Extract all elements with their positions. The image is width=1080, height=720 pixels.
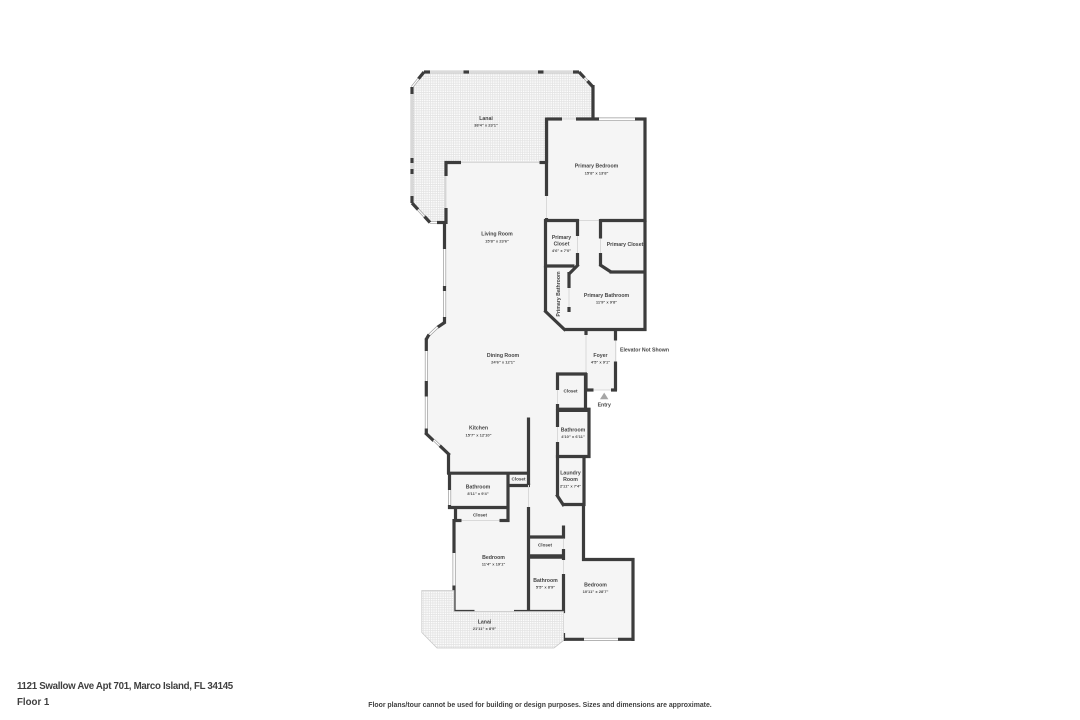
svg-text:4'5" x 9'1": 4'5" x 9'1"	[591, 360, 610, 365]
svg-text:Living Room: Living Room	[481, 232, 513, 238]
svg-text:Entry: Entry	[598, 403, 611, 409]
svg-text:11'4" x 19'1": 11'4" x 19'1"	[482, 562, 506, 567]
svg-text:Primary Bathroom: Primary Bathroom	[584, 293, 630, 299]
svg-text:Bathroom: Bathroom	[466, 485, 491, 491]
svg-text:Laundry: Laundry	[560, 471, 581, 477]
svg-text:Bathroom: Bathroom	[561, 428, 586, 434]
svg-text:Closet: Closet	[511, 477, 526, 482]
svg-text:Primary Bathroom: Primary Bathroom	[556, 271, 562, 317]
svg-text:Foyer: Foyer	[593, 353, 607, 359]
svg-text:8'11" x 9'4": 8'11" x 9'4"	[467, 491, 488, 496]
svg-text:Elevator Not Shown: Elevator Not Shown	[620, 348, 669, 354]
svg-text:1121 Swallow Ave Apt 701, Marc: 1121 Swallow Ave Apt 701, Marco Island, …	[17, 681, 234, 692]
svg-text:21'11" x 8'9": 21'11" x 8'9"	[473, 626, 497, 631]
svg-text:Room: Room	[563, 477, 578, 483]
svg-text:4'6" x 7'0": 4'6" x 7'0"	[552, 248, 571, 253]
svg-text:Primary Bedroom: Primary Bedroom	[575, 164, 619, 170]
svg-text:Primary Closet: Primary Closet	[607, 242, 644, 248]
svg-text:4'10" x 6'11": 4'10" x 6'11"	[561, 434, 585, 439]
svg-text:10'11" x 28'7": 10'11" x 28'7"	[583, 589, 609, 594]
svg-text:Lanai: Lanai	[478, 620, 492, 626]
svg-text:11'9" x 9'8": 11'9" x 9'8"	[596, 300, 617, 305]
svg-text:Closet: Closet	[538, 543, 553, 548]
svg-text:Kitchen: Kitchen	[469, 426, 488, 432]
svg-text:Closet: Closet	[563, 389, 578, 394]
svg-text:Bedroom: Bedroom	[584, 583, 607, 589]
svg-text:38'4" x 23'1": 38'4" x 23'1"	[474, 123, 498, 128]
svg-text:Bathroom: Bathroom	[533, 578, 558, 584]
svg-text:15'8" x 23'6": 15'8" x 23'6"	[485, 239, 509, 244]
svg-text:15'8" x 13'8": 15'8" x 13'8"	[585, 171, 609, 176]
svg-text:5'5" x 8'9": 5'5" x 8'9"	[536, 585, 555, 590]
svg-text:Closet: Closet	[554, 242, 570, 248]
svg-text:Lanai: Lanai	[479, 116, 493, 122]
svg-text:2'11" x 7'4": 2'11" x 7'4"	[560, 484, 581, 489]
svg-text:Bedroom: Bedroom	[482, 555, 505, 561]
svg-text:15'7" x 12'10": 15'7" x 12'10"	[465, 433, 491, 438]
svg-text:Closet: Closet	[473, 513, 488, 518]
svg-text:24'6" x 12'1": 24'6" x 12'1"	[491, 360, 515, 365]
svg-text:Floor 1: Floor 1	[17, 697, 50, 708]
svg-text:Primary: Primary	[552, 235, 571, 241]
svg-text:Floor plans/tour cannot be use: Floor plans/tour cannot be used for buil…	[368, 702, 712, 709]
svg-text:Dining Room: Dining Room	[487, 353, 520, 359]
